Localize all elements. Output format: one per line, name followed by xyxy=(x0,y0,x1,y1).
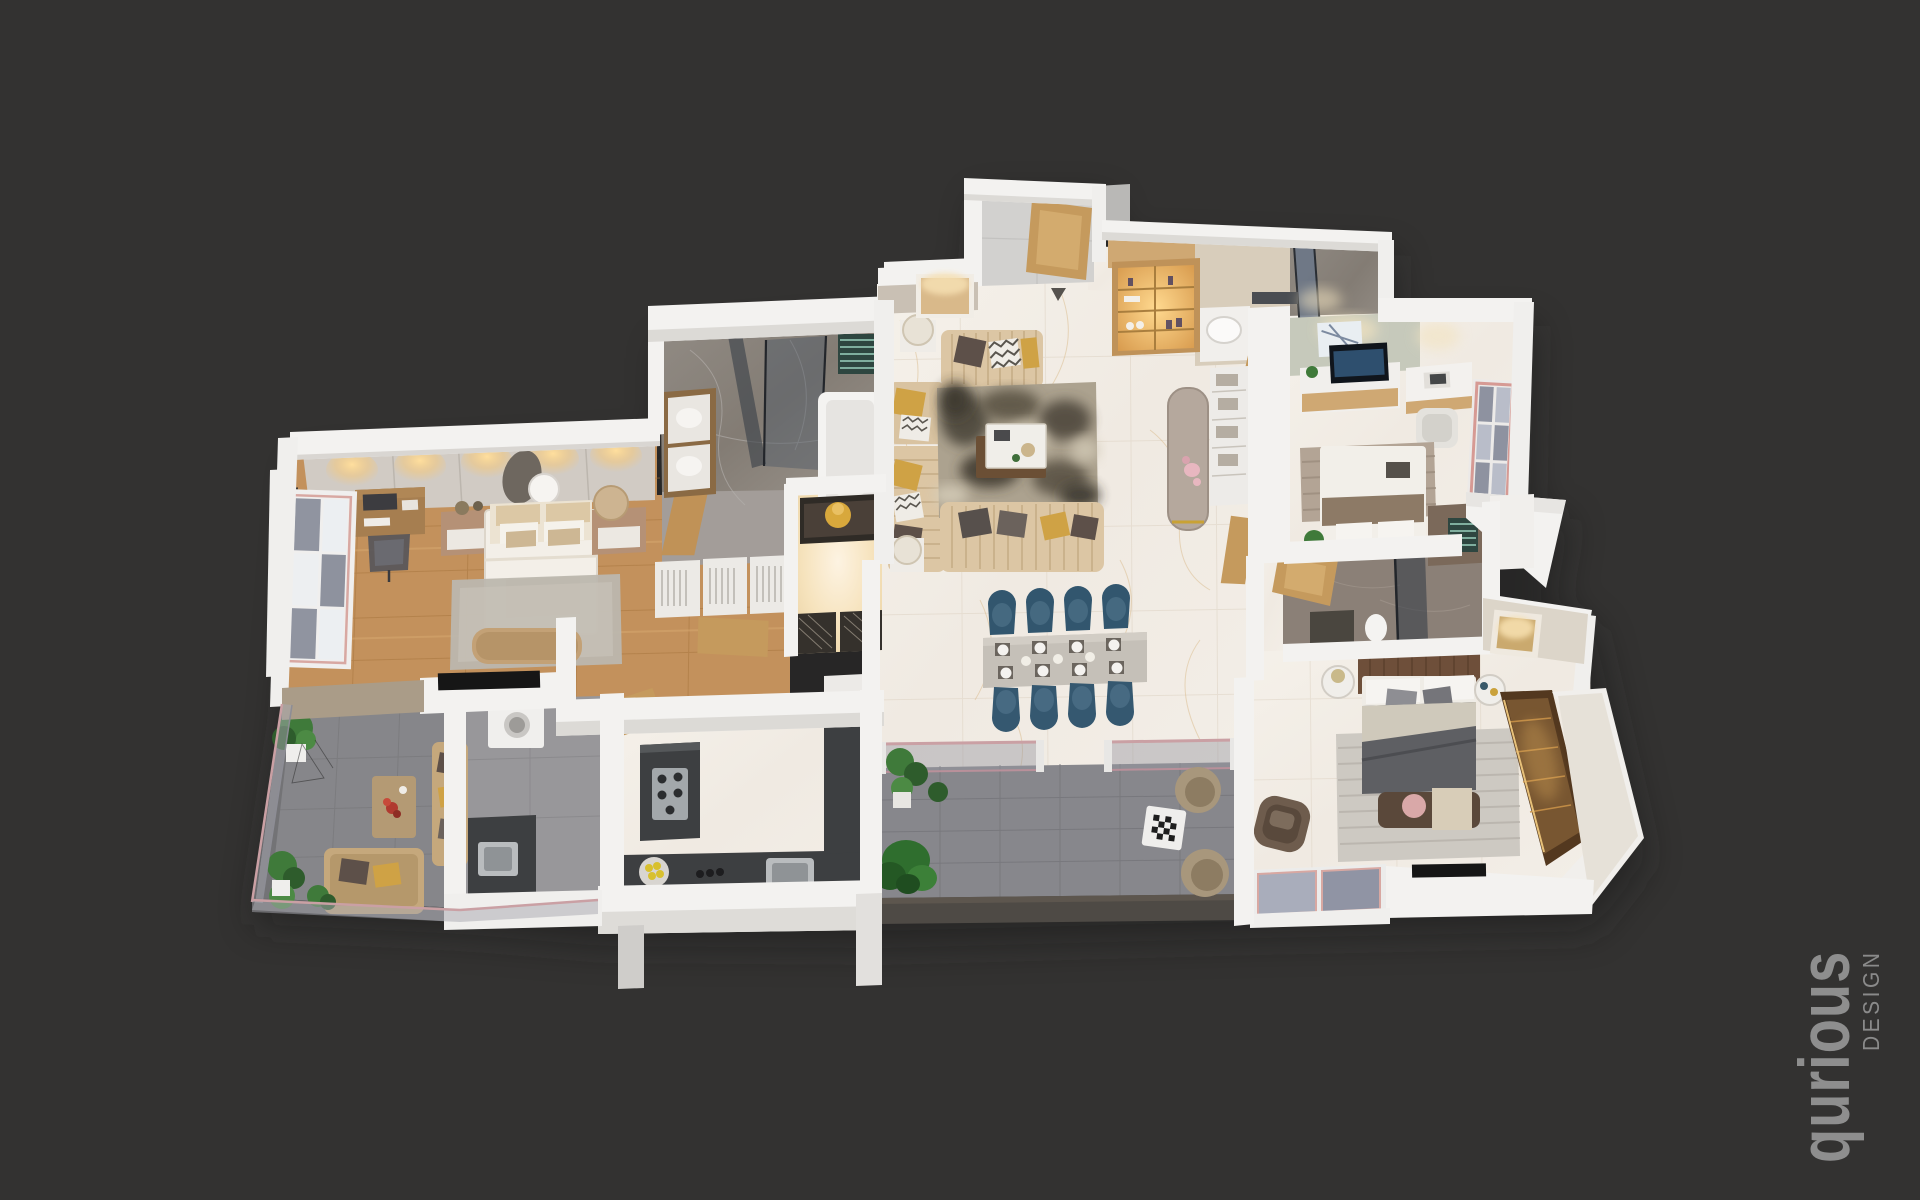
svg-text:DESIGN: DESIGN xyxy=(1858,950,1884,1051)
svg-text:qurious: qurious xyxy=(1784,951,1864,1163)
